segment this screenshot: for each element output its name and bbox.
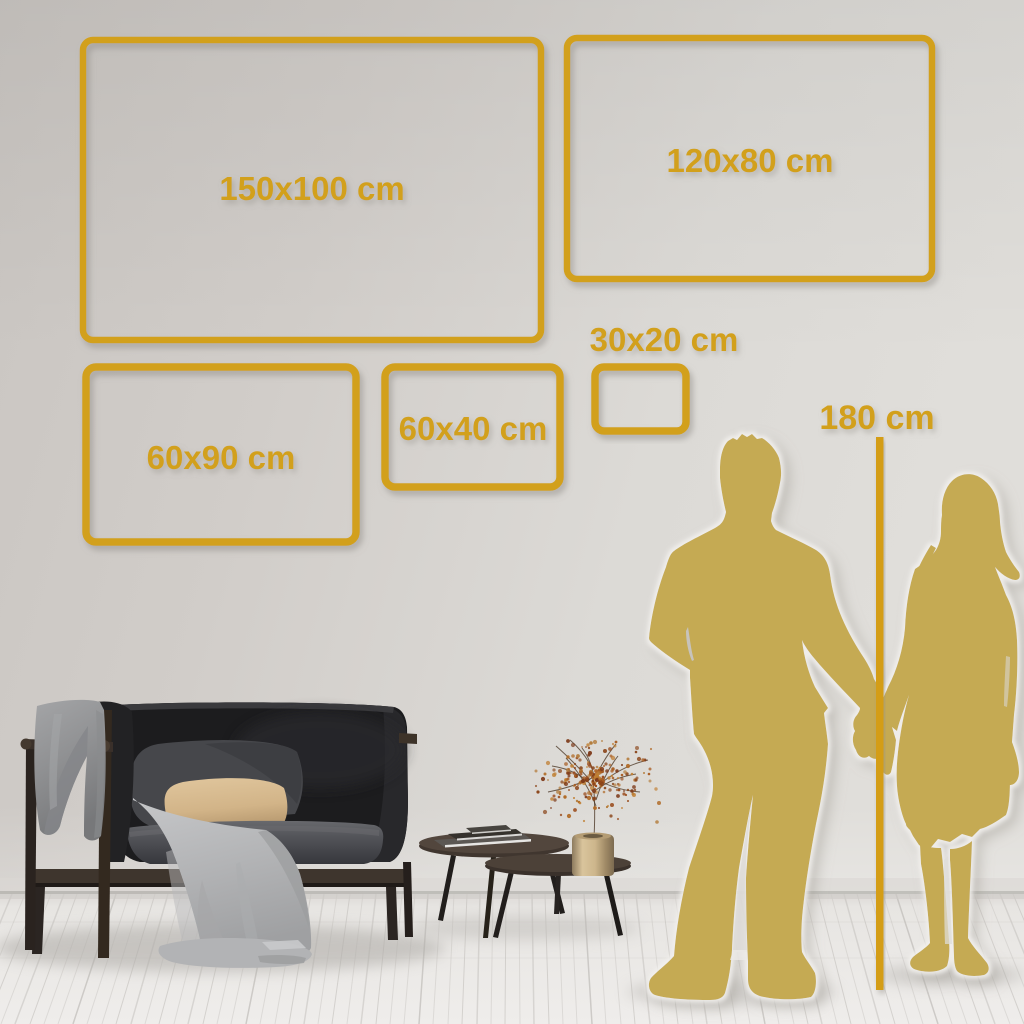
svg-text:60x40 cm: 60x40 cm xyxy=(399,410,548,447)
svg-text:120x80 cm: 120x80 cm xyxy=(667,142,834,179)
svg-text:60x90 cm: 60x90 cm xyxy=(147,439,296,476)
svg-text:180 cm: 180 cm xyxy=(819,399,934,437)
svg-text:150x100 cm: 150x100 cm xyxy=(219,170,404,207)
svg-text:30x20 cm: 30x20 cm xyxy=(590,321,739,358)
